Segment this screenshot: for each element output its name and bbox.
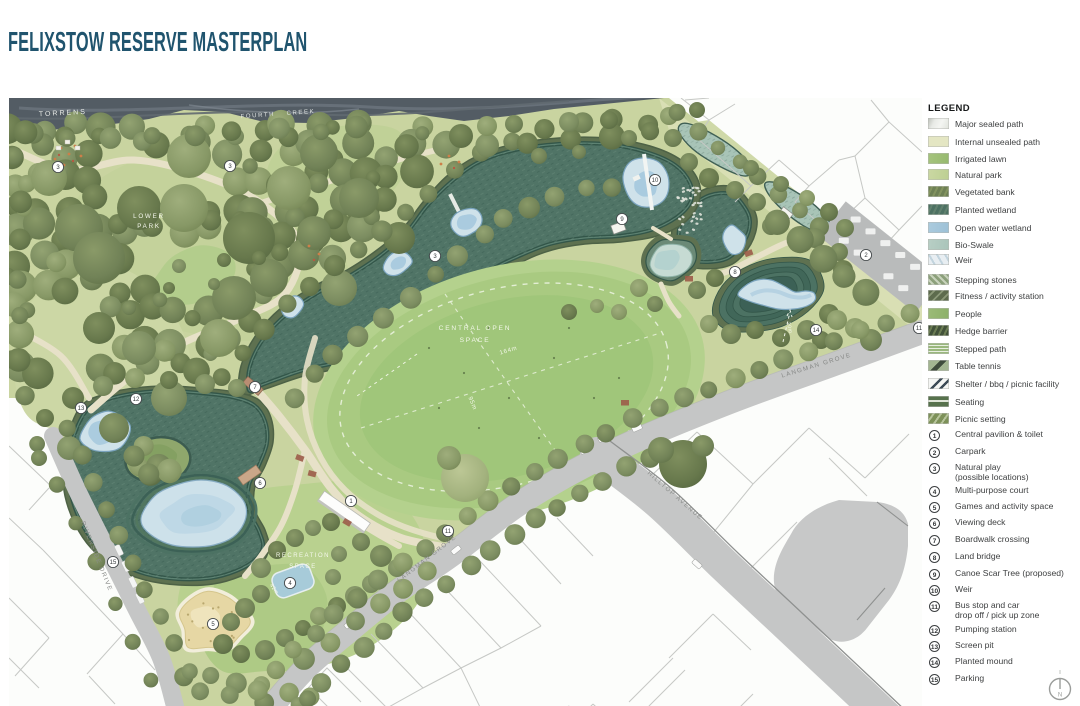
svg-text:PARK: PARK <box>137 223 161 230</box>
svg-text:CENTRAL OPEN: CENTRAL OPEN <box>439 325 512 332</box>
svg-text:LOWER: LOWER <box>133 213 165 220</box>
svg-text:N: N <box>1058 693 1062 699</box>
svg-text:13: 13 <box>78 406 85 412</box>
svg-text:12: 12 <box>133 397 140 403</box>
svg-text:SPACE: SPACE <box>289 564 316 570</box>
svg-text:15: 15 <box>110 560 117 566</box>
svg-text:SPACE: SPACE <box>460 337 491 344</box>
svg-text:10: 10 <box>652 178 659 184</box>
svg-text:11: 11 <box>445 529 452 535</box>
svg-text:RECREATION: RECREATION <box>276 553 330 559</box>
svg-text:11: 11 <box>916 326 922 332</box>
svg-text:14: 14 <box>813 328 820 334</box>
